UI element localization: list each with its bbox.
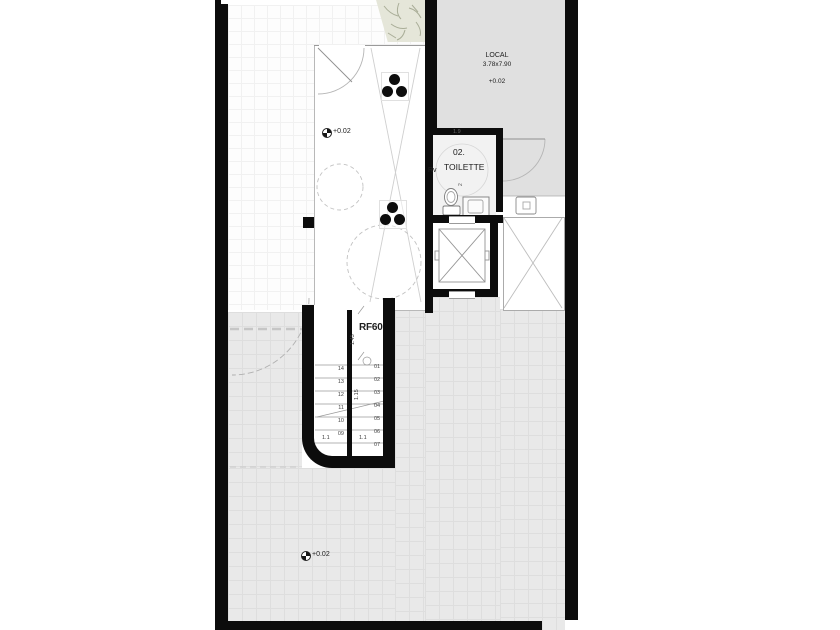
wall-local-divider <box>425 0 437 133</box>
step-number: 11 <box>334 405 344 411</box>
wall-stub-hall <box>303 217 314 228</box>
elevator-door-gap <box>449 291 475 299</box>
outer-wall-left <box>215 4 228 630</box>
step-number: 10 <box>334 418 344 424</box>
duct-cross-lines <box>504 218 562 308</box>
label-rv: Rv <box>428 167 437 175</box>
room-number-toilette: 02. <box>453 148 465 157</box>
step-number: 05 <box>374 416 384 422</box>
level-label-hall: +0.02 <box>333 128 351 136</box>
sink-icon <box>463 197 489 217</box>
note-toilette: 2 <box>459 183 464 186</box>
dim-toilette-door: 1.9 <box>453 129 461 135</box>
dim-flight-left: 1.1 <box>322 435 330 441</box>
elevator-car-icon <box>435 218 489 292</box>
wall-toilette-top <box>425 128 503 135</box>
vegetation-icon <box>384 3 421 40</box>
level-marker-icon <box>322 128 332 138</box>
level-label-terrace: +0.02 <box>312 551 330 559</box>
stair-label-rf60: RF60 <box>359 322 383 333</box>
wall-elevator-right <box>490 215 498 297</box>
water-heater-icon <box>516 197 536 214</box>
room-size-local: 3.78x7.90 <box>471 61 523 68</box>
step-number: 13 <box>334 379 344 385</box>
floor-plan: LOCAL 3.78x7.90 +0.02 1.9 02. TOILETTE R… <box>0 0 840 630</box>
step-number: 01 <box>374 364 384 370</box>
step-number: 03 <box>374 390 384 396</box>
room-label-toilette: TOILETTE <box>444 163 484 172</box>
plan-linework <box>0 0 840 630</box>
room-label-local: LOCAL <box>475 52 519 60</box>
dim-stair-top: 1.45 <box>350 334 356 345</box>
step-number: 12 <box>334 392 344 398</box>
toilet-icon <box>443 189 460 216</box>
outer-wall-left-cap <box>215 0 221 5</box>
wall-stair-right <box>383 298 395 468</box>
dim-stair-mid: 1.15 <box>354 389 360 400</box>
turning-circles <box>317 164 421 299</box>
outer-wall-bottom <box>222 621 542 630</box>
elevator-door-gap <box>449 216 475 224</box>
step-number: 06 <box>374 429 384 435</box>
step-number: 07 <box>374 442 384 448</box>
level-marker-icon <box>301 551 311 561</box>
drain-dots-icon <box>381 72 409 101</box>
step-number: 04 <box>374 403 384 409</box>
gate-swing-lines <box>230 298 309 467</box>
outer-wall-right <box>565 0 578 620</box>
drain-dots-icon <box>379 200 407 229</box>
door-arc-hall <box>318 48 364 94</box>
level-label-local: +0.02 <box>475 78 519 85</box>
step-number: 09 <box>334 431 344 437</box>
step-number: 02 <box>374 377 384 383</box>
wall-stair-divider <box>347 310 352 456</box>
door-arc-toilette <box>503 139 545 181</box>
dim-flight-right: 1.1 <box>359 435 367 441</box>
step-number: 14 <box>334 366 344 372</box>
wall-toilette-right <box>496 128 503 212</box>
